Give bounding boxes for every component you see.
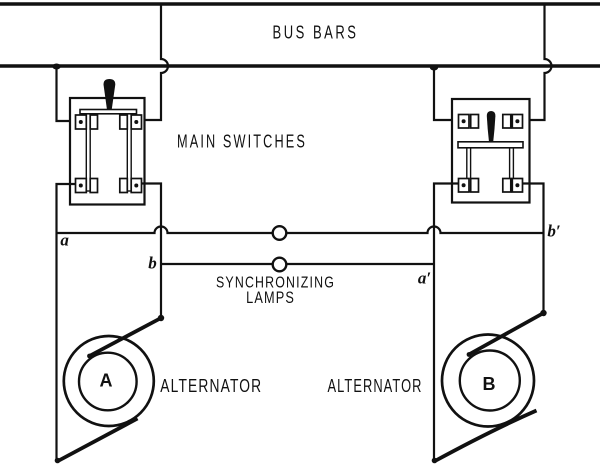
svg-text:ALTERNATOR: ALTERNATOR [328,376,423,396]
svg-text:A: A [100,371,113,391]
svg-text:b′: b′ [547,222,560,241]
svg-text:b: b [148,254,157,273]
svg-text:a′: a′ [418,269,431,288]
svg-text:B: B [483,374,496,394]
svg-text:BUS BARS: BUS BARS [273,23,359,43]
svg-text:ALTERNATOR: ALTERNATOR [160,376,262,396]
svg-text:MAIN SWITCHES: MAIN SWITCHES [177,132,307,152]
svg-text:LAMPS: LAMPS [246,289,295,307]
svg-text:a: a [60,231,69,250]
